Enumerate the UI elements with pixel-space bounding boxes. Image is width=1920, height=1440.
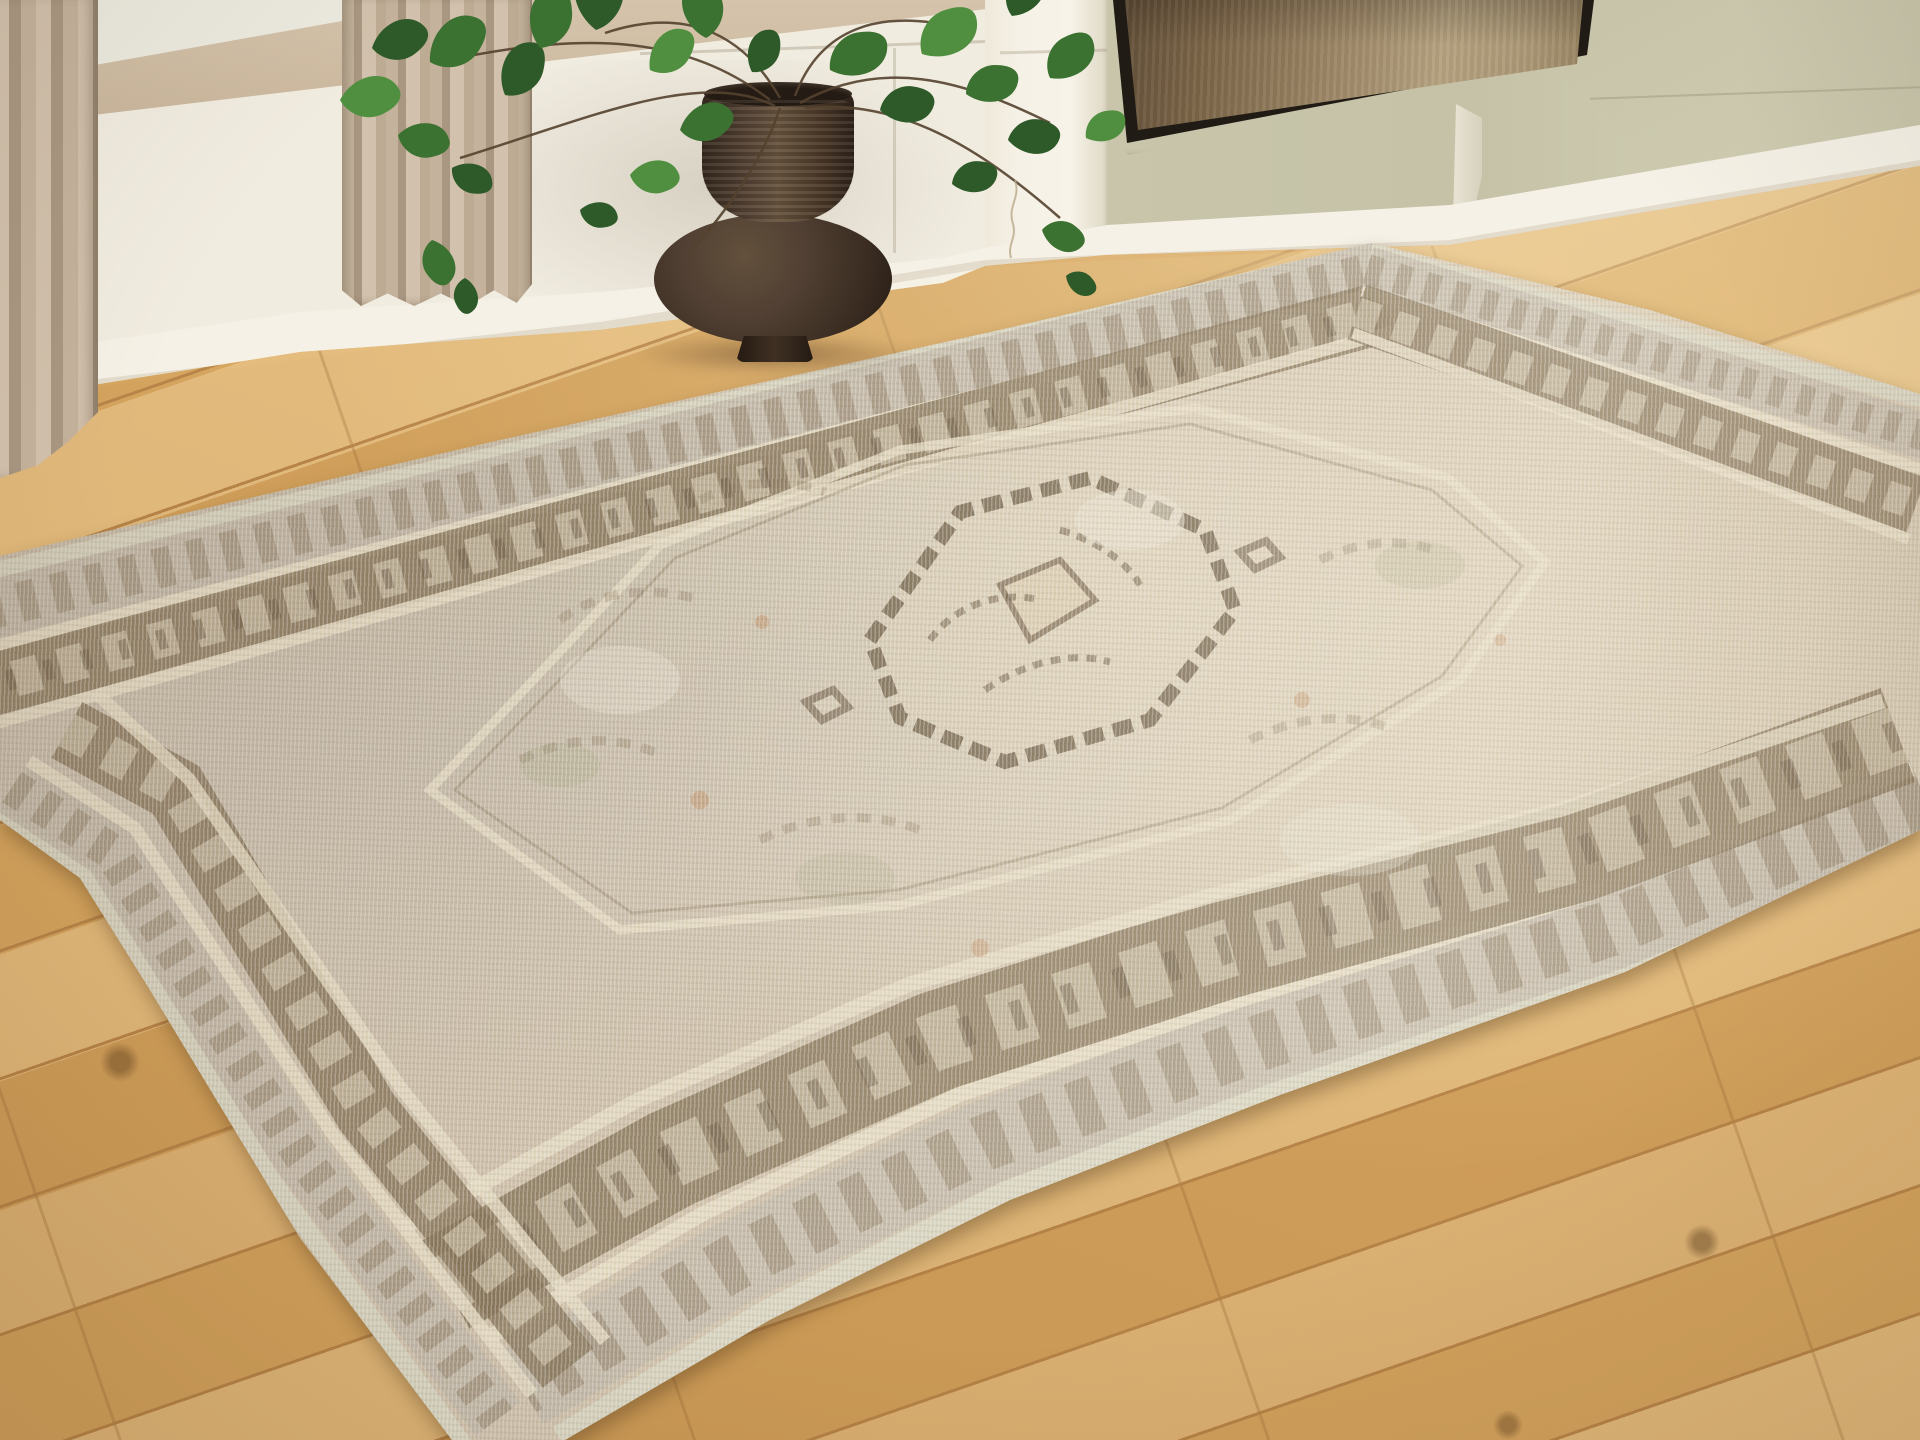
room-photo [0,0,1920,1440]
plant [260,0,1140,348]
